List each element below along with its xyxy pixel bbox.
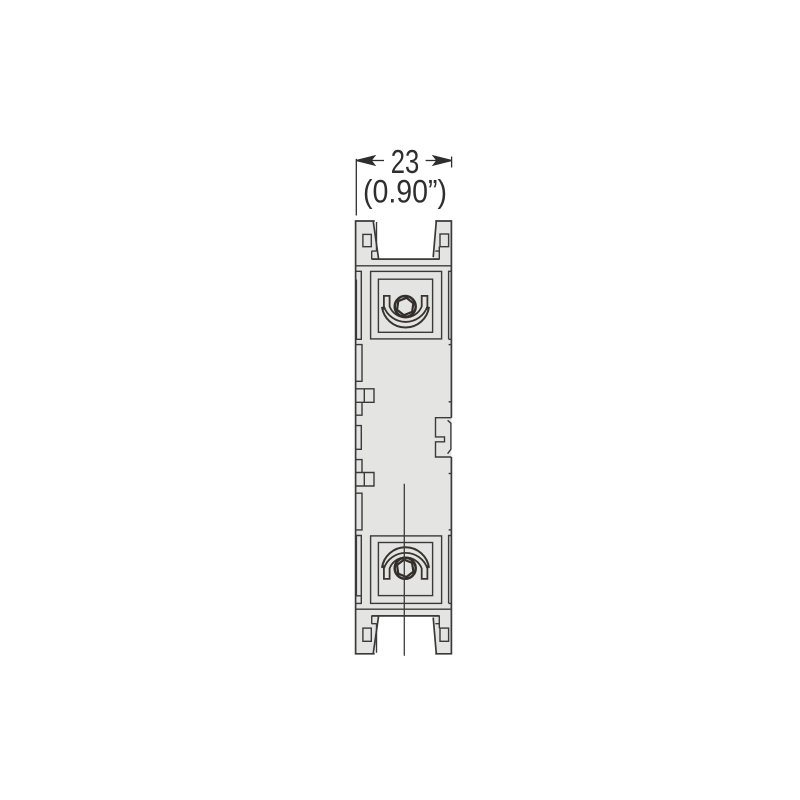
svg-text:(0.90”): (0.90”) [363,174,447,210]
